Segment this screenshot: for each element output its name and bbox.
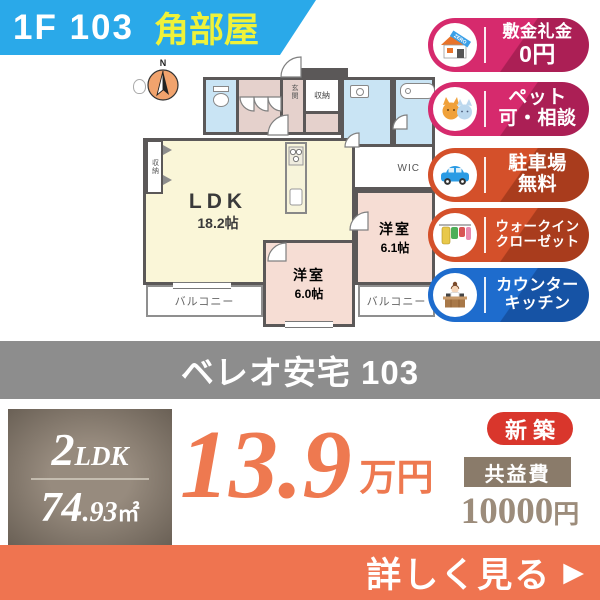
detail-button[interactable]: 詳しく見る ▶ [0,545,600,600]
area-main: 74 [40,485,82,531]
badge-parking-line2: 無料 [486,175,589,196]
listing-card[interactable]: N 玄関 収納 WIC LDK [0,0,600,600]
common-fee-label-box: 共益費 [464,457,571,487]
unit-number-label: 1F 103 [13,8,134,48]
layout-rooms: LDK [75,441,129,471]
common-fee-label: 共益費 [485,458,551,487]
clothes-icon [433,213,477,257]
layout-number: 2 [52,424,75,475]
badge-kitchen-line1: カウンター [486,277,589,295]
badge-pets-ok: ペット 可・相談 [428,82,589,136]
badge-no-deposit-line2: 0円 [486,42,589,67]
badge-no-deposit: ZERO 敷金礼金 0円 [428,18,589,72]
door-arcs [113,55,443,327]
new-construction-label: 新築 [499,413,561,445]
badge-wic-line1: ウォークイン [486,220,589,235]
common-fee-value: 10000円 [446,490,594,533]
car-icon [433,153,477,197]
property-name: ベレオ安宅 103 [181,346,419,394]
badge-walk-in-closet: ウォークイン クローゼット [428,208,589,262]
rent-value: 13.9 [180,414,352,517]
badge-kitchen-line2: キッチン [486,295,589,313]
badge-no-deposit-line1: 敷金礼金 [486,23,589,42]
badge-separator [484,157,486,193]
property-title-bar: ベレオ安宅 103 [0,341,600,399]
header-banner: 1F 103 角部屋 [0,0,316,55]
kitchen-icon [433,273,477,317]
fee-unit: 円 [553,500,579,529]
floorplan: N 玄関 収納 WIC LDK [113,55,443,327]
badge-wic-line2: クローゼット [486,235,589,250]
spec-divider [31,478,149,480]
corner-room-label: 角部屋 [154,2,259,53]
house-zero-icon: ZERO [433,23,477,67]
cats-icon [433,87,477,131]
area-decimal: .93 [82,497,117,528]
badge-separator [484,277,486,313]
spec-box: 2LDK 74.93㎡ [8,409,172,545]
area-unit: ㎡ [117,501,139,526]
badge-pets-line2: 可・相談 [486,109,589,130]
badge-counter-kitchen: カウンター キッチン [428,268,589,322]
detail-button-label: 詳しく見る [366,547,551,598]
badge-pets-line1: ペット [486,88,589,109]
arrow-right-icon: ▶ [563,557,584,588]
rent-unit: 万円 [360,447,434,501]
badge-separator [484,27,486,63]
badge-separator [484,91,486,127]
new-construction-badge: 新築 [487,412,573,445]
fee-amount: 10000 [461,491,554,532]
badge-parking-line1: 駐車場 [486,154,589,175]
badge-free-parking: 駐車場 無料 [428,148,589,202]
badge-separator [484,217,486,253]
rent-price: 13.9 万円 [180,414,434,517]
